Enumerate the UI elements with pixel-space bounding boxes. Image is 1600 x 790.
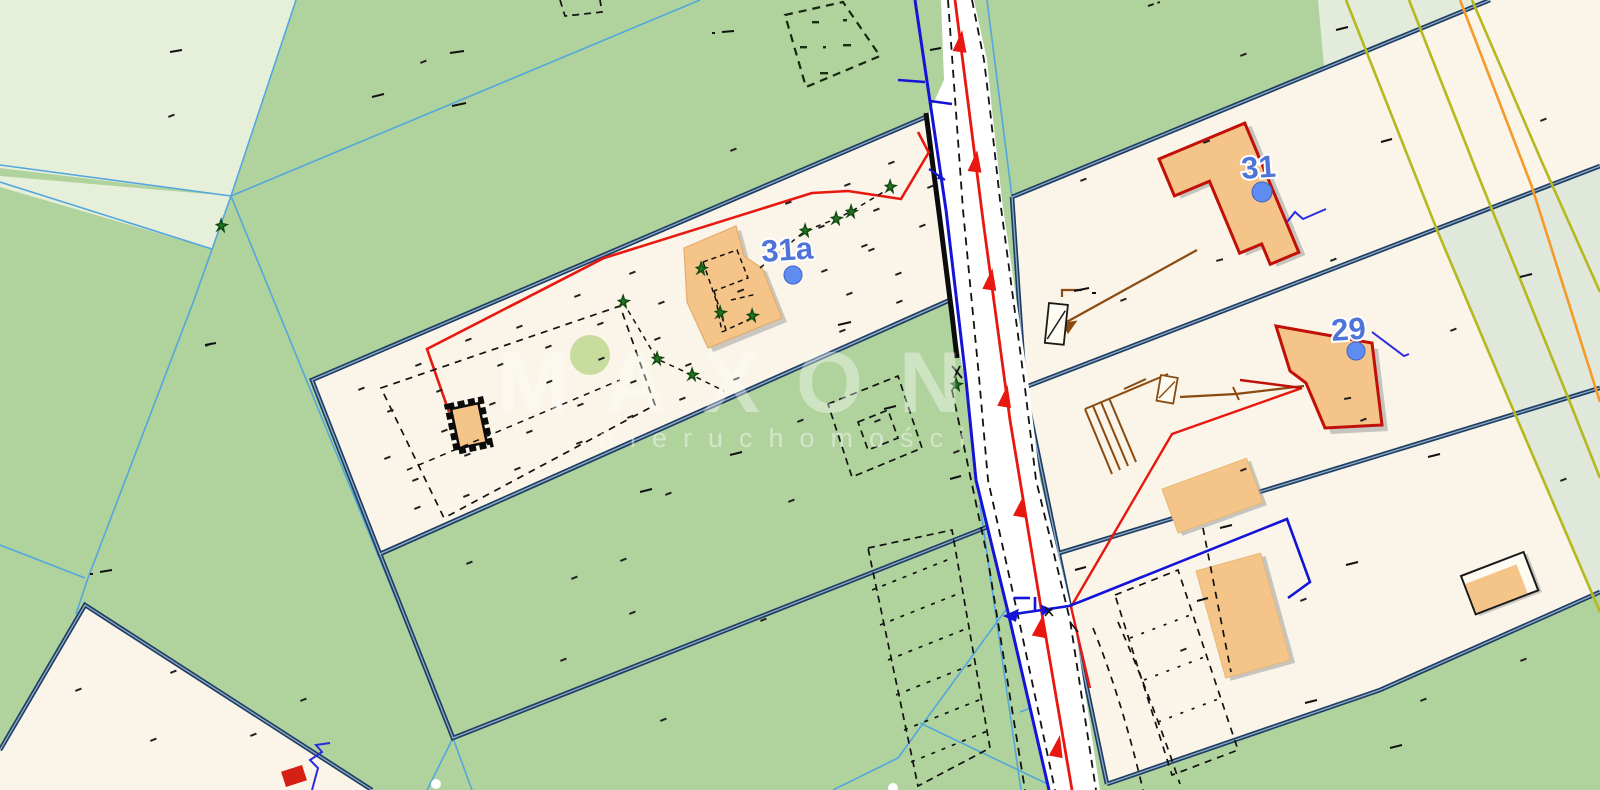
svg-text:31: 31 bbox=[1240, 149, 1277, 186]
svg-text:29: 29 bbox=[1330, 311, 1367, 348]
svg-text:31a: 31a bbox=[760, 230, 815, 269]
svg-text:MAXON: MAXON bbox=[497, 335, 997, 431]
svg-text:nieruchomości: nieruchomości bbox=[599, 423, 981, 453]
